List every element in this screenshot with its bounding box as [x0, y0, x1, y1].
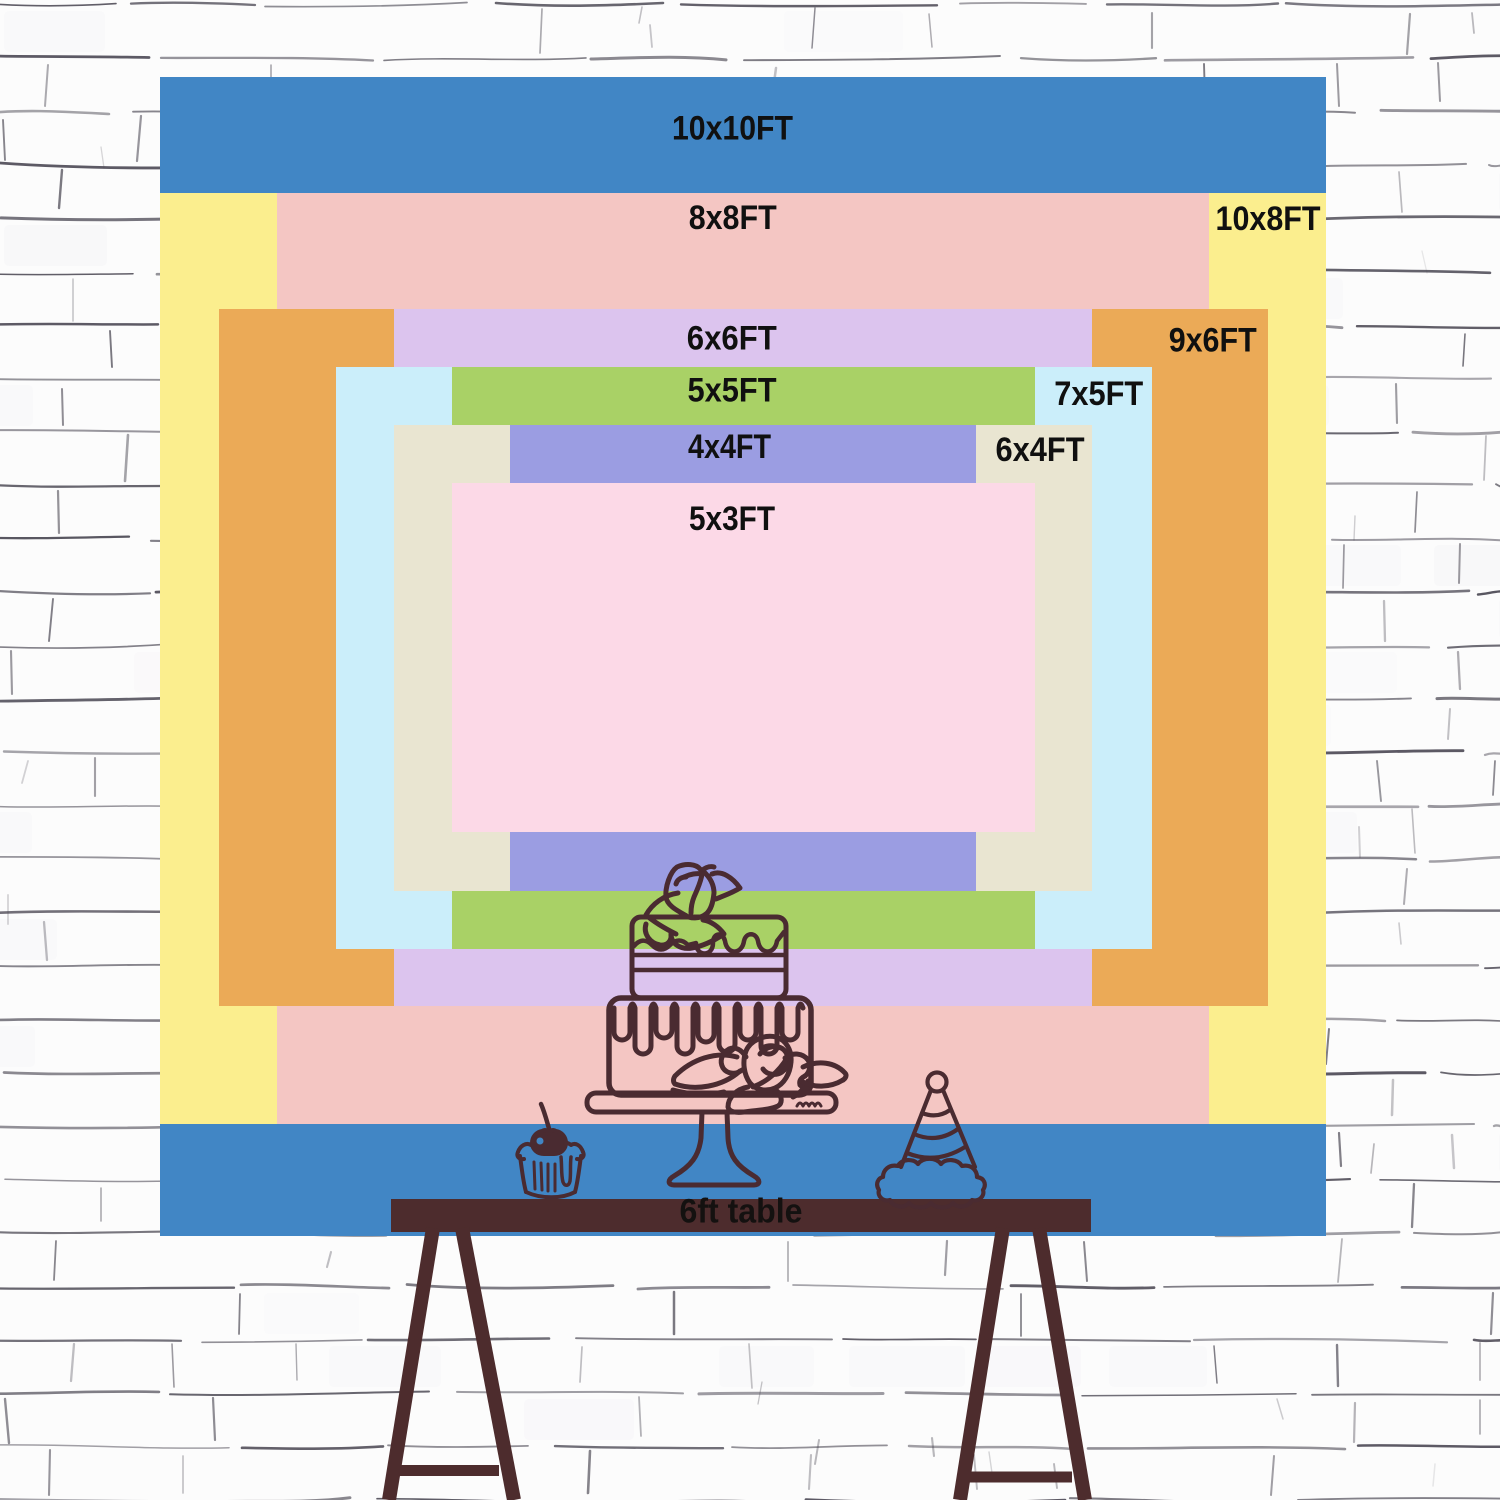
svg-text:6ft table: 6ft table — [680, 1192, 803, 1230]
svg-text:6x6FT: 6x6FT — [687, 320, 777, 358]
svg-text:5x5FT: 5x5FT — [688, 371, 777, 409]
svg-text:10x8FT: 10x8FT — [1216, 200, 1321, 238]
svg-text:8x8FT: 8x8FT — [689, 199, 777, 237]
svg-text:9x6FT: 9x6FT — [1169, 322, 1257, 360]
svg-text:10x10FT: 10x10FT — [672, 109, 793, 147]
svg-text:7x5FT: 7x5FT — [1054, 375, 1143, 413]
svg-text:4x4FT: 4x4FT — [688, 428, 771, 466]
svg-text:6x4FT: 6x4FT — [996, 431, 1085, 469]
svg-text:5x3FT: 5x3FT — [689, 500, 775, 538]
